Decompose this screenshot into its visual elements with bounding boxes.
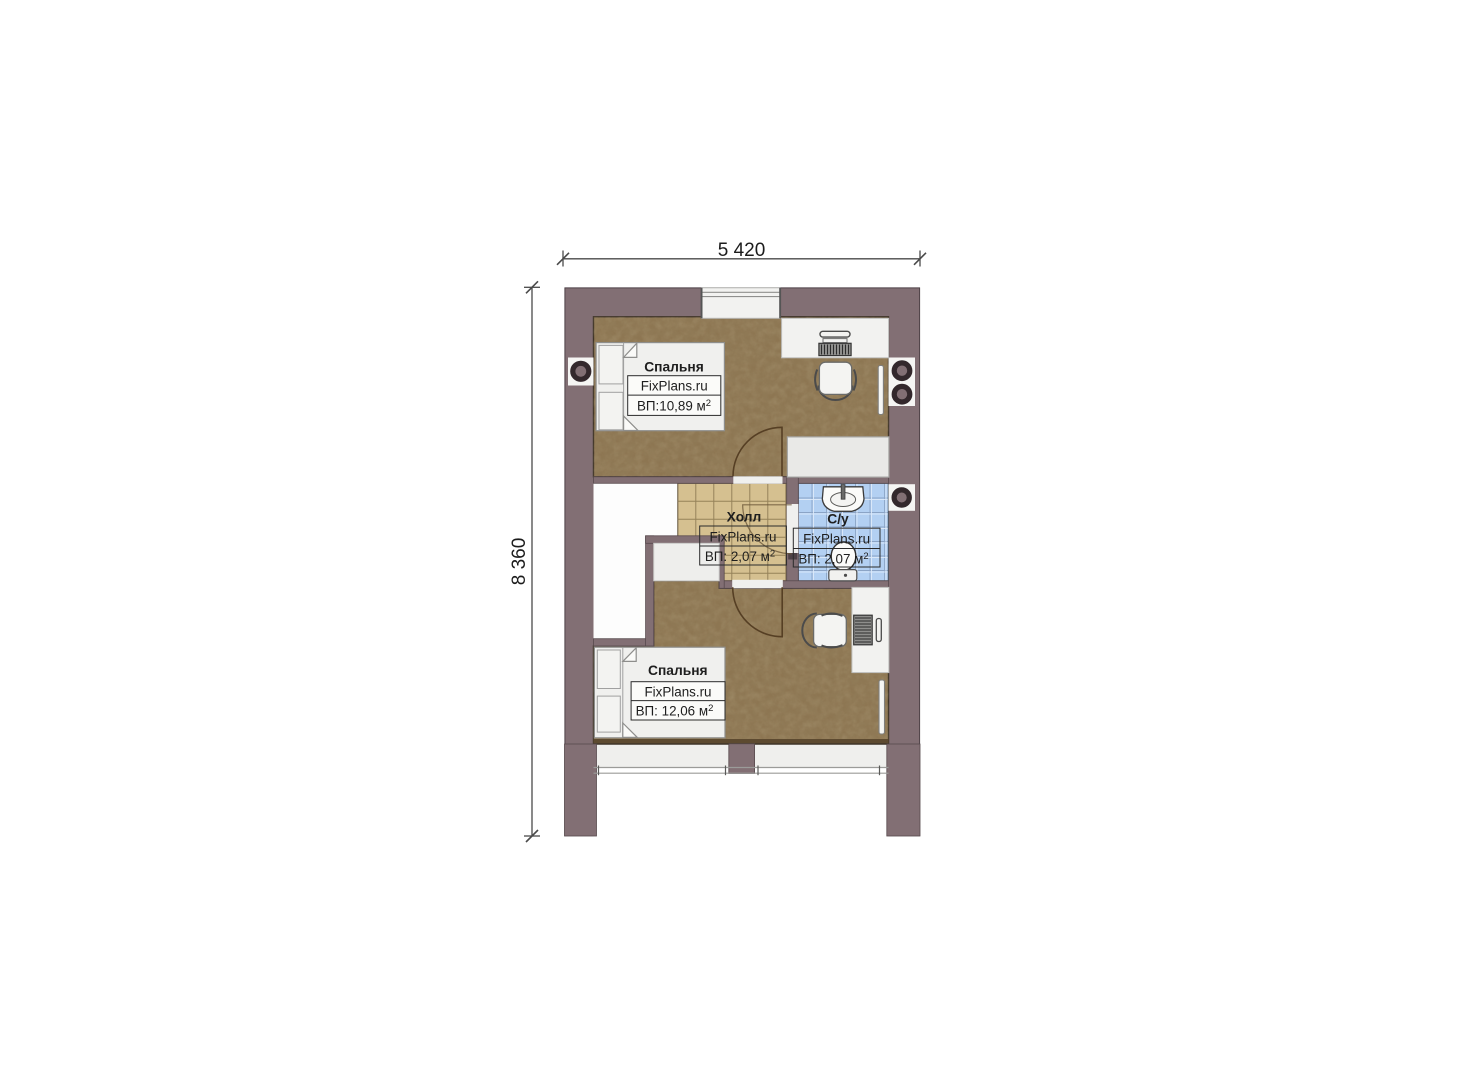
svg-text:5 420: 5 420 (718, 240, 766, 261)
svg-text:FixPlans.ru: FixPlans.ru (803, 532, 870, 547)
svg-text:8 360: 8 360 (509, 538, 530, 586)
svg-text:ВП: 2,07 м2: ВП: 2,07 м2 (798, 551, 868, 567)
svg-text:FixPlans.ru: FixPlans.ru (645, 684, 712, 699)
svg-text:FixPlans.ru: FixPlans.ru (710, 529, 777, 544)
svg-text:ВП: 12,06 м2: ВП: 12,06 м2 (636, 703, 714, 719)
svg-text:ВП: 2,07 м2: ВП: 2,07 м2 (705, 548, 775, 564)
svg-text:Спальня: Спальня (648, 663, 708, 678)
svg-text:FixPlans.ru: FixPlans.ru (641, 379, 708, 394)
svg-text:ВП:10,89 м2: ВП:10,89 м2 (637, 398, 711, 414)
svg-text:Спальня: Спальня (644, 360, 704, 375)
svg-text:С/у: С/у (827, 512, 849, 527)
svg-text:Холл: Холл (727, 510, 762, 525)
